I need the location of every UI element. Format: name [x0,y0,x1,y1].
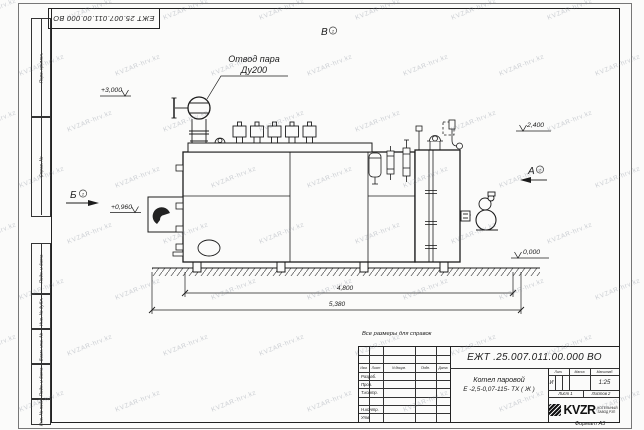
safety-valve-row [233,122,316,143]
elevation-3000: +3,000 [100,87,131,96]
drawing-sheet: Перв. примен. Справ. № Подп. и дата Инв.… [0,0,644,430]
svg-text:А: А [527,166,535,177]
boiler-rear-section [415,150,460,262]
rear-top-fittings [416,120,463,150]
svg-text:Б: Б [70,190,77,201]
svg-text:2,400: 2,400 [526,122,544,129]
svg-text:В: В [321,27,328,38]
view-label-v: В 2 [321,27,337,38]
steam-outlet-valve [172,97,211,143]
svg-text:5,380: 5,380 [329,301,346,308]
elevation-0000: 0,000 [511,249,549,258]
view-label-a: А 2 [520,166,547,183]
top-platform [188,143,372,152]
feed-pump [461,192,498,230]
svg-text:2: 2 [81,191,85,196]
steam-outlet-callout: Отвод пара Ду200 [207,54,288,99]
svg-text:2: 2 [331,28,335,33]
svg-text:2: 2 [538,167,542,172]
svg-text:Отвод пара: Отвод пара [228,54,279,64]
boiler-drawing: Отвод пара Ду200 +3,000 2,400 +0,960 0,0… [0,0,644,430]
elevation-0960: +0,960 [110,204,141,213]
small-dome [215,138,225,143]
svg-text:+0,960: +0,960 [111,204,132,211]
ground-hatch [152,268,540,276]
svg-text:Ду200: Ду200 [240,65,267,75]
elevation-2400: 2,400 [516,122,551,131]
svg-text:+3,000: +3,000 [101,87,122,94]
svg-text:0,000: 0,000 [523,249,540,256]
view-label-b: Б 2 [66,190,99,206]
svg-text:4,800: 4,800 [337,285,354,292]
